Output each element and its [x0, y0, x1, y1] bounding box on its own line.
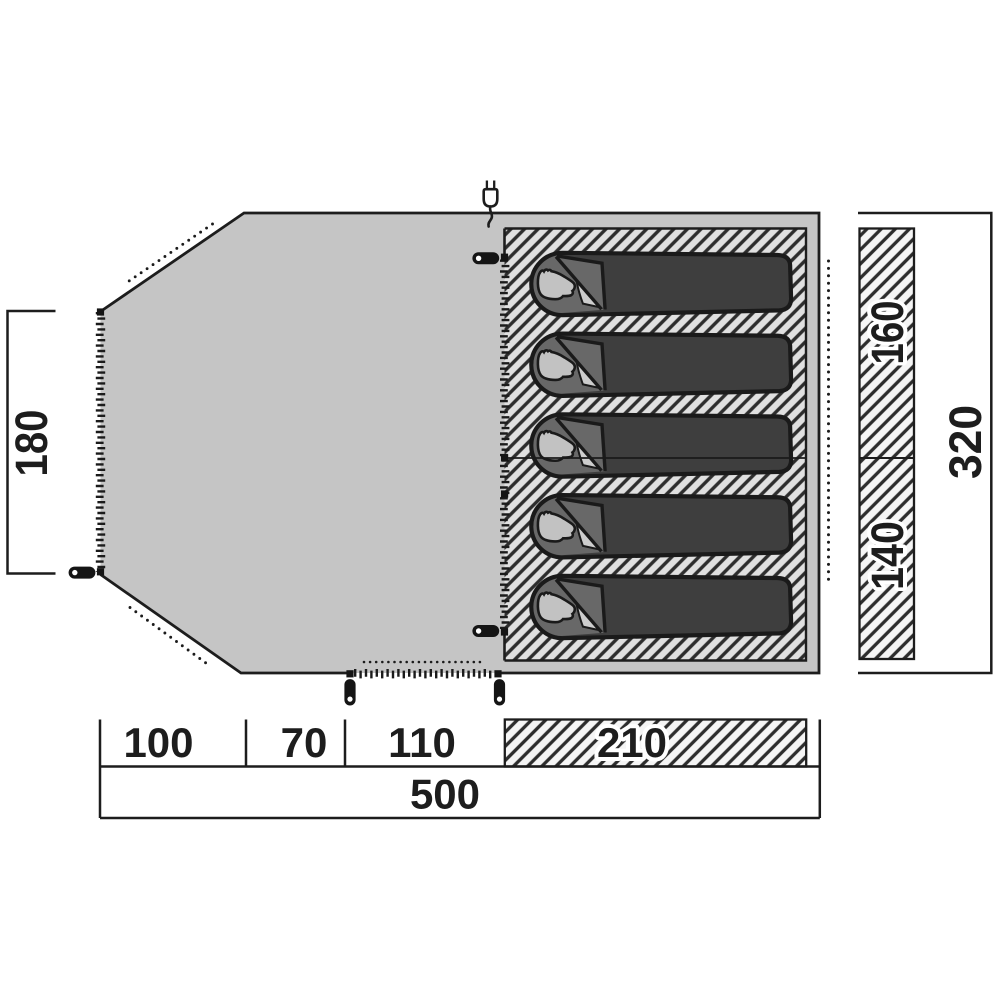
- svg-text:140: 140: [862, 521, 913, 590]
- svg-text:100: 100: [123, 719, 193, 766]
- svg-text:500: 500: [410, 771, 480, 818]
- svg-text:180: 180: [6, 410, 57, 477]
- svg-text:210: 210: [597, 719, 667, 766]
- svg-text:70: 70: [281, 719, 328, 766]
- svg-text:160: 160: [862, 301, 913, 365]
- svg-text:320: 320: [940, 405, 991, 479]
- svg-text:110: 110: [388, 719, 456, 766]
